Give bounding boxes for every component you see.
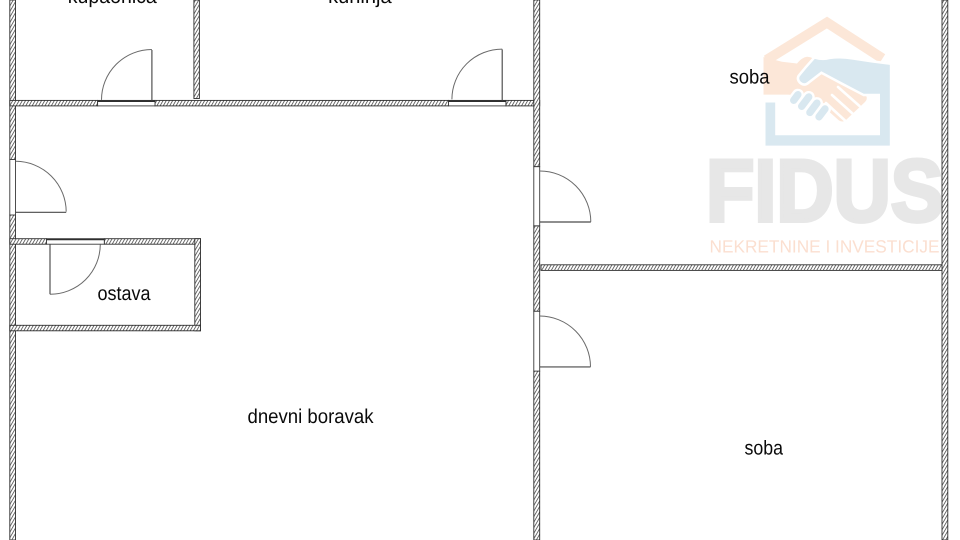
- svg-text:soba: soba: [745, 437, 784, 459]
- svg-text:soba: soba: [730, 67, 771, 89]
- svg-text:kupaonica: kupaonica: [68, 0, 158, 8]
- svg-text:kuhinja: kuhinja: [328, 0, 392, 8]
- svg-text:dnevni boravak: dnevni boravak: [248, 406, 375, 428]
- svg-text:FIDUS: FIDUS: [706, 141, 944, 240]
- svg-text:ostava: ostava: [98, 283, 152, 305]
- svg-text:NEKRETNINE I INVESTICIJE: NEKRETNINE I INVESTICIJE: [710, 236, 940, 256]
